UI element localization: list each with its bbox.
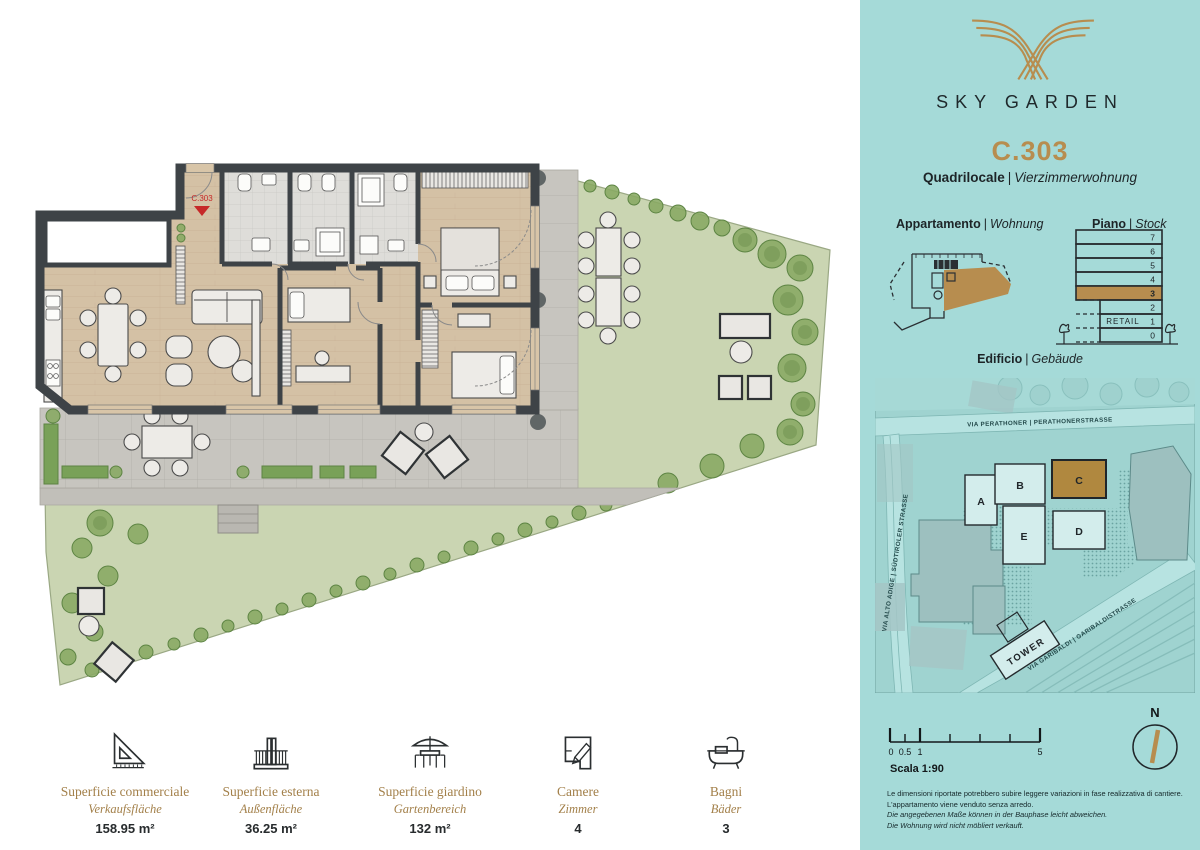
floorplan-sheet: C.303 Superficie commerciale Verkaufsflä… (0, 0, 1200, 850)
stat-label-de: Bäder (641, 802, 811, 817)
stat-bathrooms: Bagni Bäder 3 (641, 730, 811, 836)
scale-tick-1: 1 (917, 747, 922, 757)
stat-garden-area: Superficie giardino Gartenbereich 132 m² (345, 730, 515, 836)
disclaimer-line: Le dimensioni riportate potrebbero subir… (887, 789, 1189, 800)
unit-type-it: Quadrilocale (923, 170, 1005, 185)
stat-value: 158.95 m² (40, 821, 210, 836)
garden-steps (218, 505, 258, 533)
heading-de: Gebäude (1031, 352, 1082, 366)
floor-stack: 7 6 5 4 3 2 1 0 RETAIL (1056, 226, 1178, 356)
unit-marker-label: C.303 (191, 194, 213, 203)
stat-value: 132 m² (345, 821, 515, 836)
retail-label: RETAIL (1106, 317, 1139, 326)
floor-number: 4 (1150, 275, 1155, 285)
floor-number: 2 (1150, 303, 1155, 313)
site-map: A B C D E TOWER VIA PERATHONER | PERATHO… (875, 378, 1195, 693)
unit-type: Quadrilocale|Vierzimmerwohnung (860, 170, 1200, 185)
stat-value: 36.25 m² (186, 821, 356, 836)
apartment: C.303 (40, 164, 540, 415)
building-a-label: A (977, 496, 985, 508)
scale-label: Scala 1:90 (890, 763, 944, 775)
floor-number: 0 (1150, 331, 1155, 341)
utility-room (45, 219, 169, 265)
heading-it: Appartamento (896, 217, 981, 231)
scale-tick-05: 0.5 (899, 747, 912, 757)
building-d-label: D (1075, 526, 1083, 538)
disclaimer-line: Die Wohnung wird nicht möbliert verkauft… (887, 821, 1189, 832)
building-gray-east (1129, 446, 1191, 560)
stat-label-it: Camere (493, 784, 663, 800)
stat-rooms: Camere Zimmer 4 (493, 730, 663, 836)
set-square-icon (40, 730, 210, 780)
stat-label-de: Verkaufsfläche (40, 802, 210, 817)
heading-de: Wohnung (990, 217, 1044, 231)
building-section-heading: Edificio|Gebäude (860, 352, 1200, 366)
scale-bar: 0 0.5 1 5 Scala 1:90 (888, 724, 1058, 784)
stat-label-de: Außenfläche (186, 802, 356, 817)
disclaimer-line: L'appartamento viene venduto senza arred… (887, 800, 1189, 811)
garden-table-icon (345, 730, 515, 780)
compass-north-label: N (1150, 705, 1159, 720)
stat-label-it: Superficie giardino (345, 784, 515, 800)
stat-value: 3 (641, 821, 811, 836)
stat-value: 4 (493, 821, 663, 836)
building-e-label: E (1020, 531, 1027, 543)
brand-name: SKY GARDEN (860, 92, 1200, 113)
stat-label-it: Bagni (641, 784, 811, 800)
floorplan-pencil-icon (493, 730, 663, 780)
stat-label-it: Superficie commerciale (40, 784, 210, 800)
balcony-icon (186, 730, 356, 780)
building-b-label: B (1016, 480, 1024, 492)
bathtub-icon (641, 730, 811, 780)
unit-type-de: Vierzimmerwohnung (1014, 170, 1137, 185)
stat-label-de: Gartenbereich (345, 802, 515, 817)
compass: N (1125, 704, 1187, 776)
brand-logo-icon (970, 16, 1096, 84)
apartment-section-heading: Appartamento|Wohnung (896, 217, 1044, 231)
floor-number: 7 (1150, 233, 1155, 243)
bathrooms (222, 170, 418, 264)
floor-number: 6 (1150, 247, 1155, 257)
building-gray-south (973, 586, 1005, 634)
scale-tick-5: 5 (1037, 747, 1042, 757)
floor-number: 5 (1150, 261, 1155, 271)
separator: | (981, 217, 990, 231)
terrace (40, 408, 578, 488)
unit-code: C.303 (860, 136, 1200, 167)
disclaimer: Le dimensioni riportate potrebbero subir… (887, 789, 1189, 831)
building-c-label: C (1075, 475, 1083, 487)
separator: | (1005, 170, 1015, 185)
floor-plan: C.303 (0, 0, 860, 728)
disclaimer-line: Die angegebenen Maße können in der Bauph… (887, 810, 1189, 821)
stat-external-area: Superficie esterna Außenfläche 36.25 m² (186, 730, 356, 836)
scale-tick-0: 0 (888, 747, 893, 757)
heading-it: Edificio (977, 352, 1022, 366)
floor-number: 1 (1150, 317, 1155, 327)
info-panel: SKY GARDEN C.303 Quadrilocale|Vierzimmer… (860, 0, 1200, 850)
stat-label-it: Superficie esterna (186, 784, 356, 800)
stat-label-de: Zimmer (493, 802, 663, 817)
stat-commercial-area: Superficie commerciale Verkaufsfläche 15… (40, 730, 210, 836)
apartment-locator (872, 240, 1032, 335)
walkway (40, 488, 681, 505)
floor-number-highlighted: 3 (1150, 289, 1155, 299)
